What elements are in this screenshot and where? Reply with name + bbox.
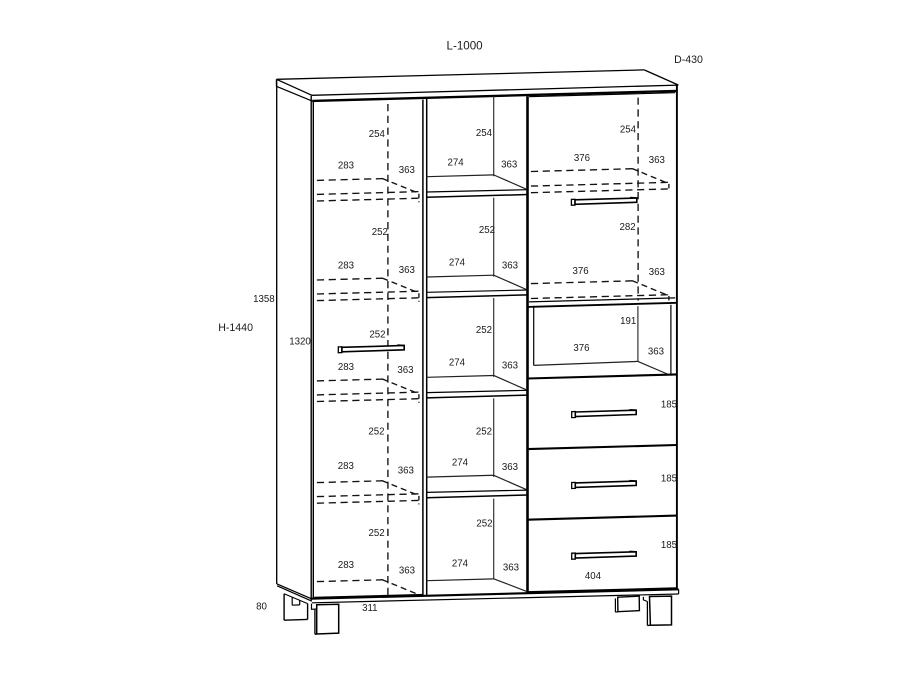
svg-text:252: 252 — [476, 325, 492, 336]
svg-text:252: 252 — [372, 227, 388, 238]
svg-text:363: 363 — [399, 165, 415, 176]
svg-text:311: 311 — [362, 603, 377, 614]
svg-text:L-1000: L-1000 — [447, 39, 483, 52]
svg-text:404: 404 — [585, 571, 602, 582]
svg-text:1320: 1320 — [289, 337, 311, 348]
svg-text:363: 363 — [398, 465, 414, 476]
svg-text:252: 252 — [369, 329, 385, 340]
svg-text:376: 376 — [573, 266, 589, 277]
svg-text:185: 185 — [661, 400, 677, 411]
svg-text:363: 363 — [649, 155, 665, 166]
svg-text:252: 252 — [368, 426, 384, 437]
svg-text:191: 191 — [620, 316, 636, 327]
svg-text:363: 363 — [399, 565, 415, 576]
svg-text:283: 283 — [338, 560, 354, 571]
svg-text:283: 283 — [338, 260, 354, 271]
svg-text:274: 274 — [452, 458, 469, 469]
svg-text:363: 363 — [502, 462, 518, 473]
svg-text:1358: 1358 — [253, 294, 275, 305]
svg-text:376: 376 — [574, 153, 590, 164]
svg-text:363: 363 — [503, 563, 519, 574]
svg-text:283: 283 — [338, 362, 354, 373]
svg-text:363: 363 — [399, 265, 415, 276]
svg-text:252: 252 — [479, 225, 495, 236]
svg-text:363: 363 — [397, 365, 413, 376]
svg-text:274: 274 — [448, 158, 465, 169]
svg-text:254: 254 — [620, 125, 637, 136]
svg-text:185: 185 — [661, 473, 677, 484]
svg-text:185: 185 — [661, 540, 677, 551]
svg-text:252: 252 — [476, 426, 492, 437]
svg-text:252: 252 — [369, 528, 385, 539]
svg-text:283: 283 — [338, 461, 354, 472]
svg-text:D-430: D-430 — [674, 54, 703, 66]
svg-text:274: 274 — [449, 258, 466, 269]
svg-text:254: 254 — [369, 129, 386, 140]
svg-text:274: 274 — [449, 358, 466, 369]
svg-text:376: 376 — [573, 343, 589, 354]
svg-text:363: 363 — [502, 361, 518, 372]
svg-text:283: 283 — [338, 160, 354, 171]
svg-text:252: 252 — [476, 519, 492, 530]
svg-text:363: 363 — [501, 159, 517, 170]
svg-text:363: 363 — [502, 261, 518, 272]
svg-text:80: 80 — [256, 601, 267, 612]
svg-text:254: 254 — [476, 128, 493, 139]
svg-text:274: 274 — [452, 559, 469, 570]
svg-text:H-1440: H-1440 — [218, 322, 253, 334]
svg-text:363: 363 — [648, 347, 664, 358]
svg-text:282: 282 — [620, 222, 636, 233]
svg-text:363: 363 — [649, 267, 665, 278]
